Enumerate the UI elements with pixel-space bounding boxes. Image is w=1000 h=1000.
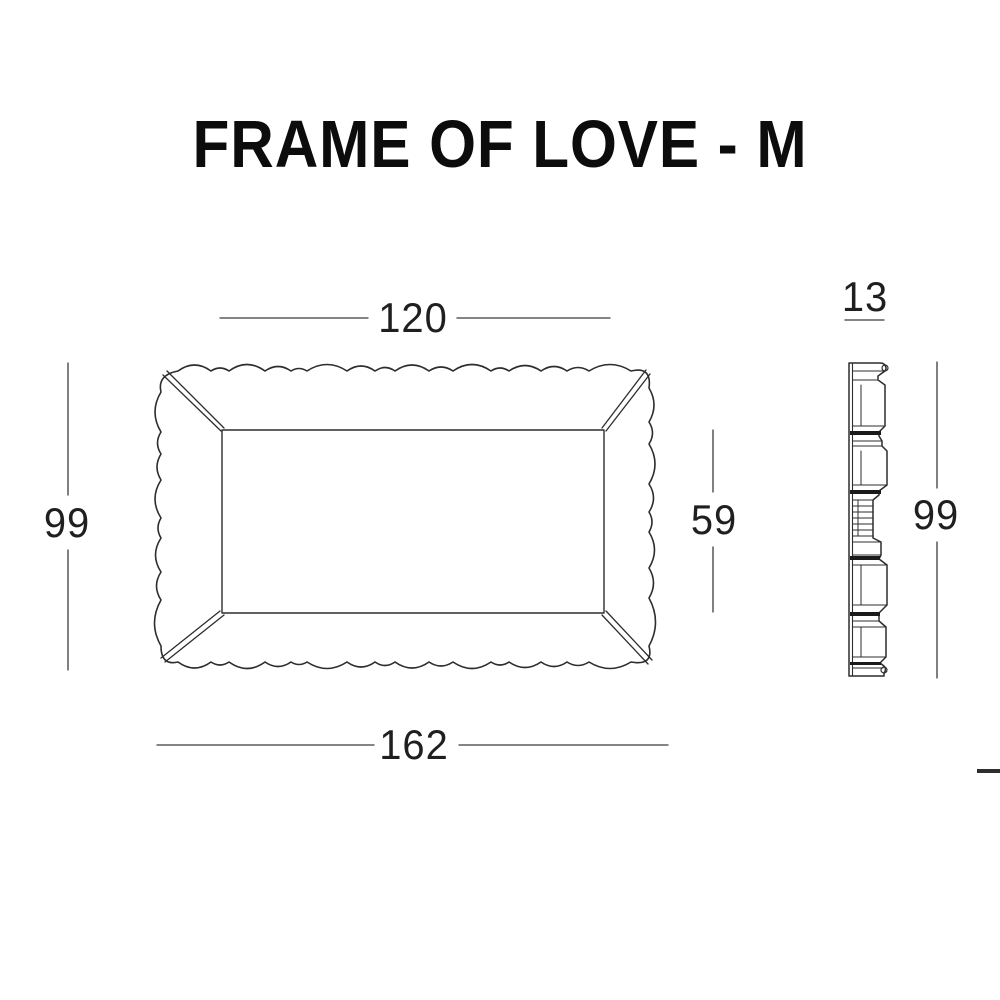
- front-view-linework: [155, 365, 656, 669]
- front-view-inner-rectangle: [222, 430, 604, 613]
- miter-joint-top-left: [163, 371, 224, 431]
- miter-joint-bottom-right: [602, 611, 652, 664]
- drawing-canvas: [0, 0, 1000, 1000]
- dim-label-inner-width: 120: [378, 294, 447, 342]
- side-view-dark-bands: [850, 431, 881, 665]
- dim-label-side-height: 99: [913, 491, 959, 539]
- side-view-linework: [849, 363, 888, 676]
- dim-label-outer-width: 162: [379, 721, 448, 769]
- dim-label-depth: 13: [842, 273, 888, 321]
- dimension-lines: [68, 318, 937, 745]
- dim-label-inner-height: 59: [691, 496, 737, 544]
- miter-joint-top-right: [602, 370, 650, 431]
- dim-label-outer-height: 99: [44, 499, 90, 547]
- front-view-scalloped-outline: [155, 365, 656, 669]
- technical-drawing-page: FRAME OF LOVE - M: [0, 0, 1000, 1000]
- miter-joint-bottom-left: [161, 611, 224, 662]
- page-edge-mark: [977, 769, 1000, 773]
- side-view-outline: [849, 363, 887, 676]
